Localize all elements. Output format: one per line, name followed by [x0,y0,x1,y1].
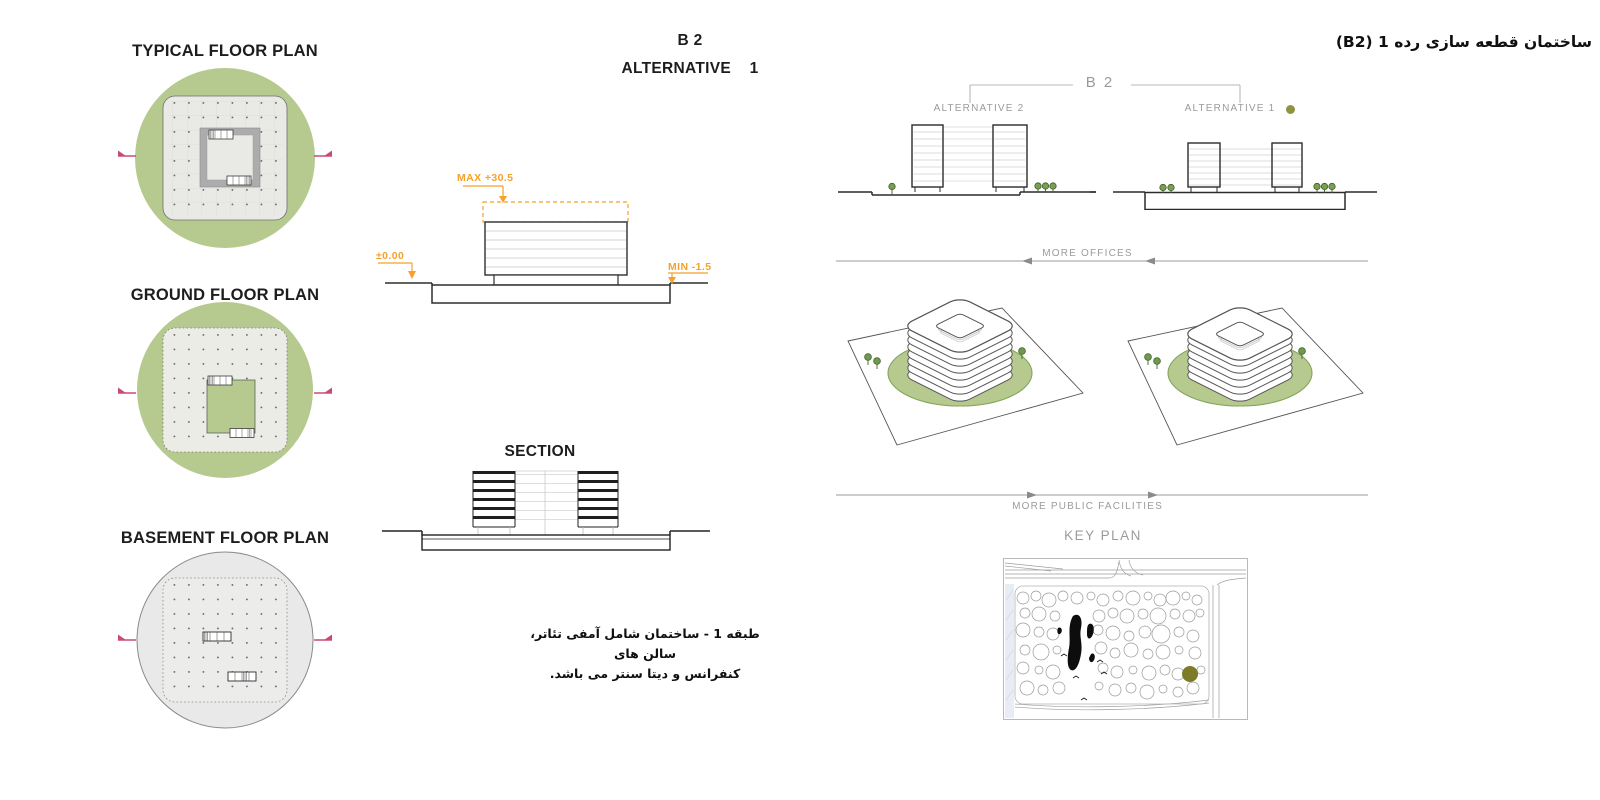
section-drawing [360,440,720,555]
ground-floor-plan-drawing [115,290,335,490]
arrow-down-icon [408,271,416,279]
max-height-label: MAX +30.5 [457,172,513,184]
right-tower-slabs [578,471,618,519]
typical-floor-plan-drawing [115,58,335,258]
arrow-left-icon [1145,258,1155,265]
max-envelope-dashed-box [483,202,628,222]
b2-bracket-lines [970,85,1240,103]
alternative-2-elevation [838,125,1096,195]
min-level-label: MIN -1.5 [668,261,711,273]
more-offices-arrow [830,253,1375,269]
key-plan-drawing [1003,558,1248,720]
height-annotated-section-drawing: MAX +30.5 ±0.00 MIN -1.5 [370,160,720,310]
farsi-sheet-header: ساختمان قطعه سازی رده 1 (B2) [1272,33,1592,51]
farsi-caption: طبقه 1 - ساختمان شامل آمفی تئاتر، سالن ه… [520,624,770,684]
axon-alternative-2 [848,297,1083,445]
b2-parcel-highlight [1182,666,1198,682]
basement-floor-plan-drawing [115,540,335,740]
courtyard [207,380,255,433]
arrow-left-icon [1022,258,1032,265]
alternative-1-elevation [1090,143,1377,210]
key-plan-title: KEY PLAN [1043,528,1163,543]
farsi-caption-line1: طبقه 1 - ساختمان شامل آمفی تئاتر، سالن ه… [520,624,770,664]
more-public-facilities-label: MORE PUBLIC FACILITIES [990,501,1185,512]
axon-alternative-1 [1128,305,1363,445]
farsi-caption-line2: کنفرانس و دیتا سنتر می باشد. [520,664,770,684]
alternatives-elevations-drawing [820,70,1380,210]
arrow-right-icon [1027,492,1037,499]
tree-icon [889,183,1056,195]
b2-center-title: B 2 [600,32,780,50]
axonometric-views [830,285,1380,470]
alternative-1-center-title: ALTERNATIVE 1 [600,60,780,78]
arrow-right-icon [1148,492,1158,499]
zero-level-label: ±0.00 [376,250,404,262]
left-tower-slabs [473,471,515,519]
presentation-sheet: TYPICAL FLOOR PLAN GROUND FLOOR PLAN [0,0,1600,800]
